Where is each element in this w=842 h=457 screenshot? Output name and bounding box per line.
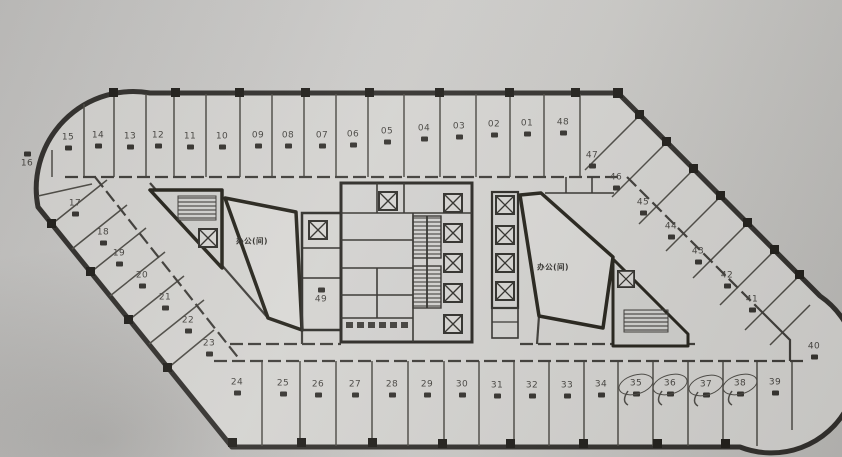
unit-09: 09 [245,132,271,149]
unit-46: 46 [603,174,629,191]
unit-03: 03 [446,123,472,140]
unit-07: 07 [309,132,335,149]
unit-28: 28 [379,381,405,398]
unit-42: 42 [714,272,740,289]
unit-door-icon [560,131,567,136]
unit-01: 01 [514,120,540,137]
unit-33: 33 [554,382,580,399]
unit-door-icon [187,145,194,150]
unit-door-icon [424,393,431,398]
unit-door-icon [315,393,322,398]
unit-41: 41 [739,296,765,313]
unit-door-icon [280,392,287,397]
unit-door-icon [206,352,213,357]
unit-door-icon [139,284,146,289]
unit-15: 15 [55,134,81,151]
unit-door-icon [384,140,391,145]
unit-door-icon [95,144,102,149]
unit-06: 06 [340,131,366,148]
unit-02: 02 [481,121,507,138]
unit-23: 23 [196,340,222,357]
unit-18: 18 [90,229,116,246]
left-hall-label: 办公(间) [236,236,268,247]
unit-door-icon [564,394,571,399]
unit-25: 25 [270,380,296,397]
unit-door-icon [421,137,428,142]
unit-door-icon [724,284,731,289]
unit-39: 39 [762,379,788,396]
unit-26: 26 [305,381,331,398]
unit-labels: 15 14 13 12 11 10 09 08 07 06 05 04 03 0… [0,0,842,457]
unit-11: 11 [177,133,203,150]
unit-29: 29 [414,381,440,398]
unit-door-icon [459,393,466,398]
unit-door-icon [389,393,396,398]
unit-door-icon [65,146,72,151]
unit-16: 16 [14,152,40,169]
unit-door-icon [100,241,107,246]
unit-04: 04 [411,125,437,142]
unit-door-icon [749,308,756,313]
unit-door-icon [737,392,744,397]
unit-door-icon [352,393,359,398]
unit-door-icon [695,260,702,265]
unit-door-icon [155,144,162,149]
unit-door-icon [234,391,241,396]
unit-47: 47 [579,152,605,169]
unit-05: 05 [374,128,400,145]
unit-door-icon [613,186,620,191]
unit-14: 14 [85,132,111,149]
unit-27: 27 [342,381,368,398]
right-hall-label: 办公(间) [537,262,569,273]
unit-door-icon [127,145,134,150]
unit-37-circled: 37 [693,381,719,398]
unit-21: 21 [152,294,178,311]
unit-44: 44 [658,223,684,240]
unit-40: 40 [801,343,827,360]
floorplan-photo: 15 14 13 12 11 10 09 08 07 06 05 04 03 0… [0,0,842,457]
unit-24: 24 [224,379,250,396]
unit-08: 08 [275,132,301,149]
unit-door-icon [255,144,262,149]
unit-12: 12 [145,132,171,149]
unit-door-icon [494,394,501,399]
unit-door-icon [72,212,79,217]
unit-door-icon [529,394,536,399]
unit-door-icon [491,133,498,138]
unit-door-icon [116,262,123,267]
unit-22: 22 [175,317,201,334]
unit-door-icon [640,211,647,216]
unit-38-circled: 38 [727,380,753,397]
unit-48: 48 [550,119,576,136]
unit-door-icon [703,393,710,398]
unit-30: 30 [449,381,475,398]
unit-34: 34 [588,381,614,398]
unit-door-icon [772,391,779,396]
unit-door-icon [668,235,675,240]
unit-door-icon [162,306,169,311]
unit-19: 19 [106,250,132,267]
unit-door-icon [185,329,192,334]
unit-32: 32 [519,382,545,399]
unit-45: 45 [630,199,656,216]
unit-10: 10 [209,133,235,150]
unit-door-icon [350,143,357,148]
unit-door-icon [219,145,226,150]
unit-13: 13 [117,133,143,150]
unit-door-icon [319,144,326,149]
unit-43: 43 [685,248,711,265]
unit-17: 17 [62,200,88,217]
unit-door-icon [811,355,818,360]
unit-door-icon [318,288,325,293]
unit-door-icon [667,392,674,397]
unit-door-icon [633,392,640,397]
unit-49: 49 [308,288,334,305]
unit-35-circled: 35 [623,380,649,397]
unit-door-icon [524,132,531,137]
unit-door-icon [456,135,463,140]
unit-door-icon [598,393,605,398]
unit-20: 20 [129,272,155,289]
unit-door-icon [285,144,292,149]
unit-door-icon [24,152,31,157]
floorplan-drawing: 15 14 13 12 11 10 09 08 07 06 05 04 03 0… [0,0,842,457]
unit-door-icon [589,164,596,169]
unit-31: 31 [484,382,510,399]
unit-36-circled: 36 [657,380,683,397]
